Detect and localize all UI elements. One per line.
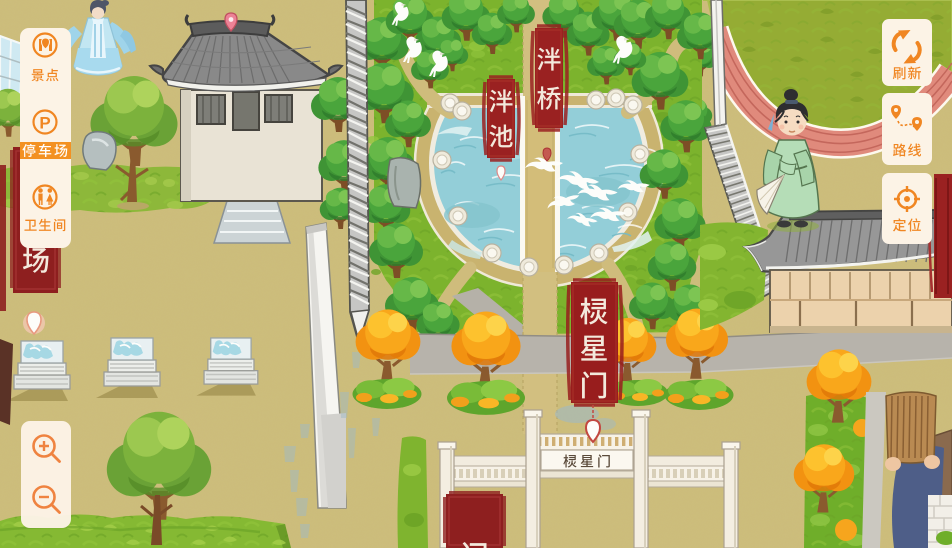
- svg-text:P: P: [39, 114, 50, 133]
